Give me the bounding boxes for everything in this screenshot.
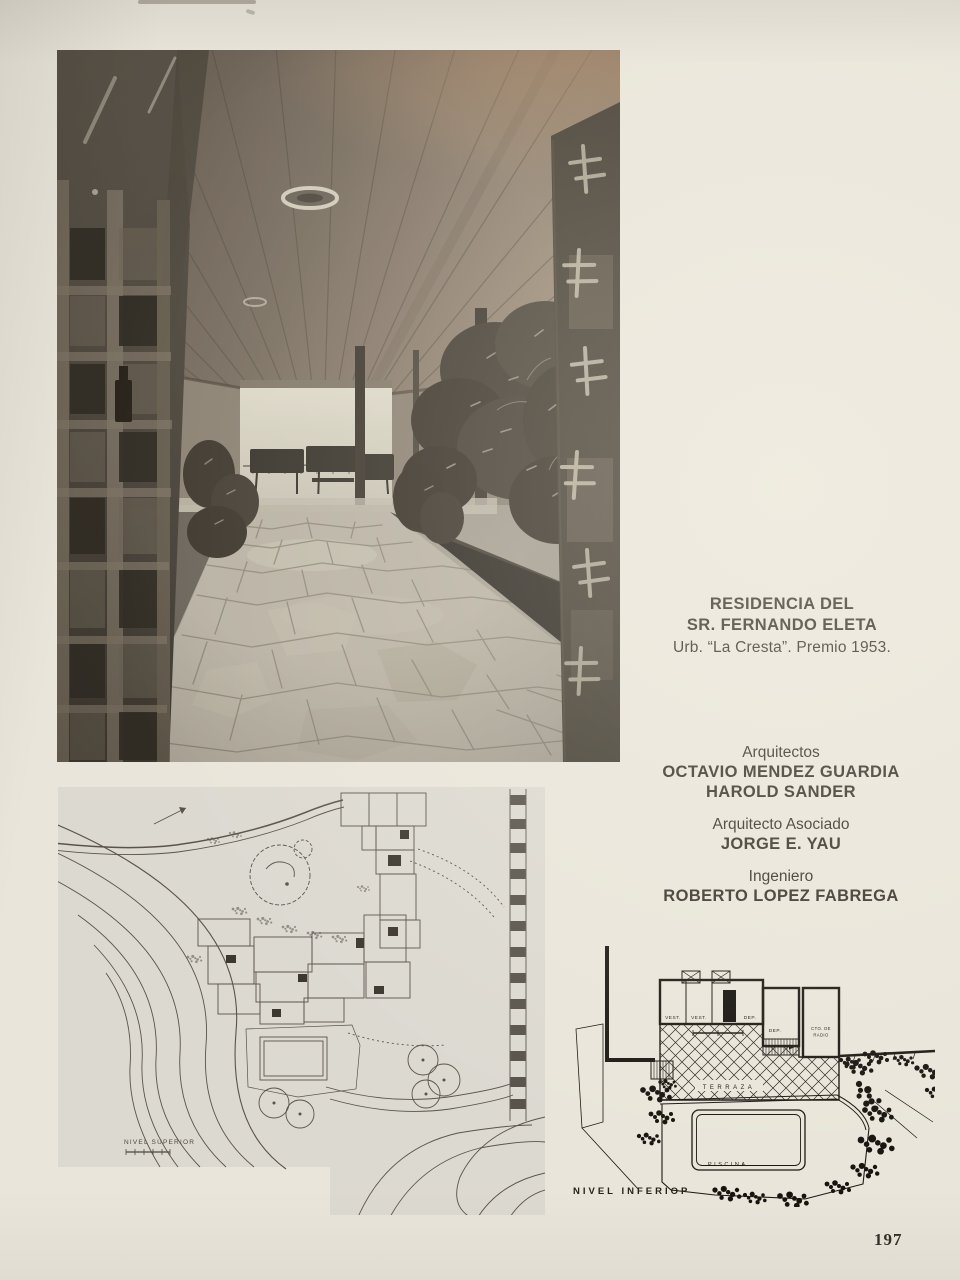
room-label-vest: VEST. xyxy=(665,1015,681,1021)
credit-role-asociado: Arquitecto Asociado xyxy=(605,815,957,834)
credits-block: Arquitectos OCTAVIO MENDEZ GUARDIA HAROL… xyxy=(605,743,957,906)
credit-name: ROBERTO LOPEZ FABREGA xyxy=(605,886,957,906)
room-label-radio: RADIO xyxy=(813,1033,829,1038)
scan-artifact xyxy=(246,9,256,16)
residence-title-line2: SR. FERNANDO ELETA xyxy=(617,615,947,636)
site-plan-drawing: NIVEL SUPERIOR xyxy=(58,787,545,1215)
lower-plan-label: NIVEL INFERIOP xyxy=(573,1186,690,1197)
residence-photo-art xyxy=(57,50,620,762)
page-number: 197 xyxy=(874,1230,903,1250)
room-label-dep: DEP. xyxy=(769,1028,782,1034)
area-label-terraza: TERRAZA xyxy=(703,1085,756,1091)
credit-role-ingeniero: Ingeniero xyxy=(605,867,957,886)
credit-name: HAROLD SANDER xyxy=(605,782,957,802)
credit-role-arquitectos: Arquitectos xyxy=(605,743,957,762)
room-label-dep: DEP. xyxy=(744,1015,757,1021)
room-label-vest: VEST. xyxy=(691,1015,707,1021)
credit-name: OCTAVIO MENDEZ GUARDIA xyxy=(605,762,957,782)
upper-plan-label: NIVEL SUPERIOR xyxy=(124,1139,195,1146)
credit-name: JORGE E. YAU xyxy=(605,834,957,854)
residence-subtitle: Urb. “La Cresta”. Premio 1953. xyxy=(617,636,947,659)
magazine-page: RESIDENCIA DEL SR. FERNANDO ELETA Urb. “… xyxy=(0,0,960,1280)
scan-artifact xyxy=(138,0,256,4)
room-label-radio: CTO. DE xyxy=(811,1026,831,1031)
ground-line xyxy=(839,1051,935,1056)
area-label-piscina: PISCINA xyxy=(708,1162,748,1168)
door-plan xyxy=(723,990,736,1022)
lower-plan-linework xyxy=(576,946,935,1199)
caption-block: RESIDENCIA DEL SR. FERNANDO ELETA Urb. “… xyxy=(617,594,947,659)
lower-level-plan-drawing: VEST. VEST. DEP. DEP. CTO. DE RADIO TERR… xyxy=(565,932,935,1207)
site-plan-svg: NIVEL SUPERIOR xyxy=(58,787,545,1215)
lower-plan-svg: VEST. VEST. DEP. DEP. CTO. DE RADIO TERR… xyxy=(565,932,935,1207)
residence-photo xyxy=(57,50,620,762)
residence-title-line1: RESIDENCIA DEL xyxy=(617,594,947,615)
pool-outline xyxy=(692,1110,805,1170)
retaining-wall xyxy=(607,946,655,1060)
